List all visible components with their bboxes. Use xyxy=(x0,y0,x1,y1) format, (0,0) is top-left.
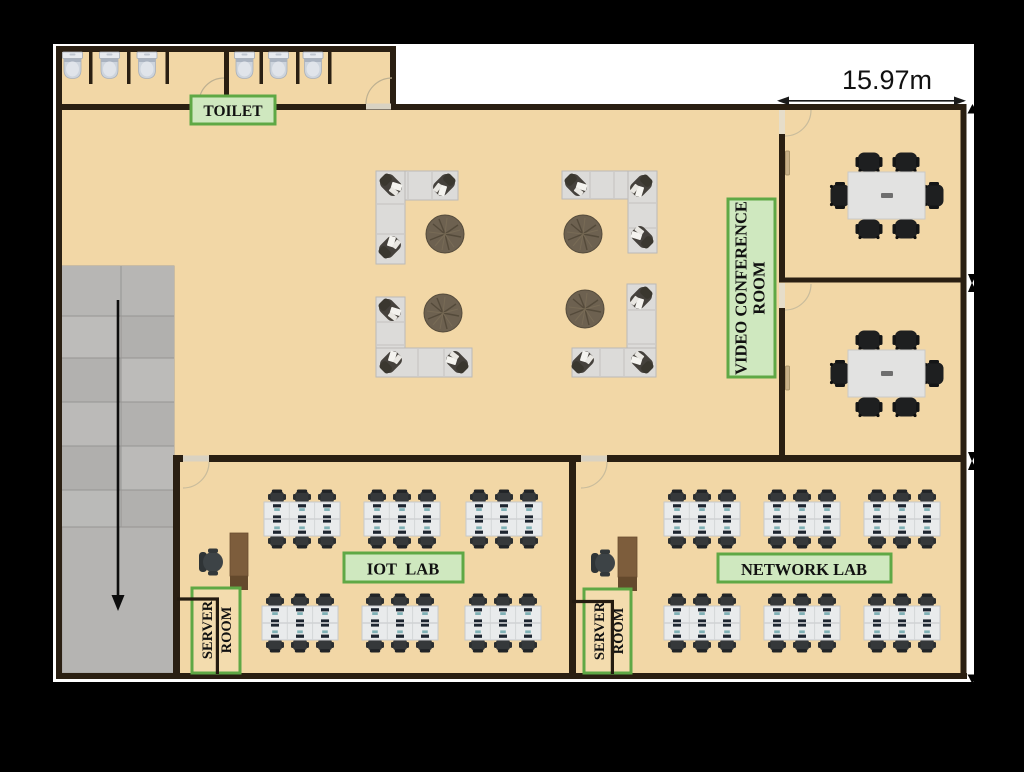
svg-text:IOT LAB: IOT LAB xyxy=(367,560,439,579)
svg-text:NETWORK LAB: NETWORK LAB xyxy=(741,560,867,579)
svg-text:ROOM: ROOM xyxy=(750,261,769,315)
svg-text:VIDEO CONFERENCE: VIDEO CONFERENCE xyxy=(732,201,751,375)
svg-text:SERVER: SERVER xyxy=(200,600,216,659)
svg-text:15.97m: 15.97m xyxy=(842,65,932,95)
svg-text:TOILET: TOILET xyxy=(203,103,263,120)
svg-text:SERVER: SERVER xyxy=(592,601,608,660)
svg-text:ROOM: ROOM xyxy=(219,606,235,653)
